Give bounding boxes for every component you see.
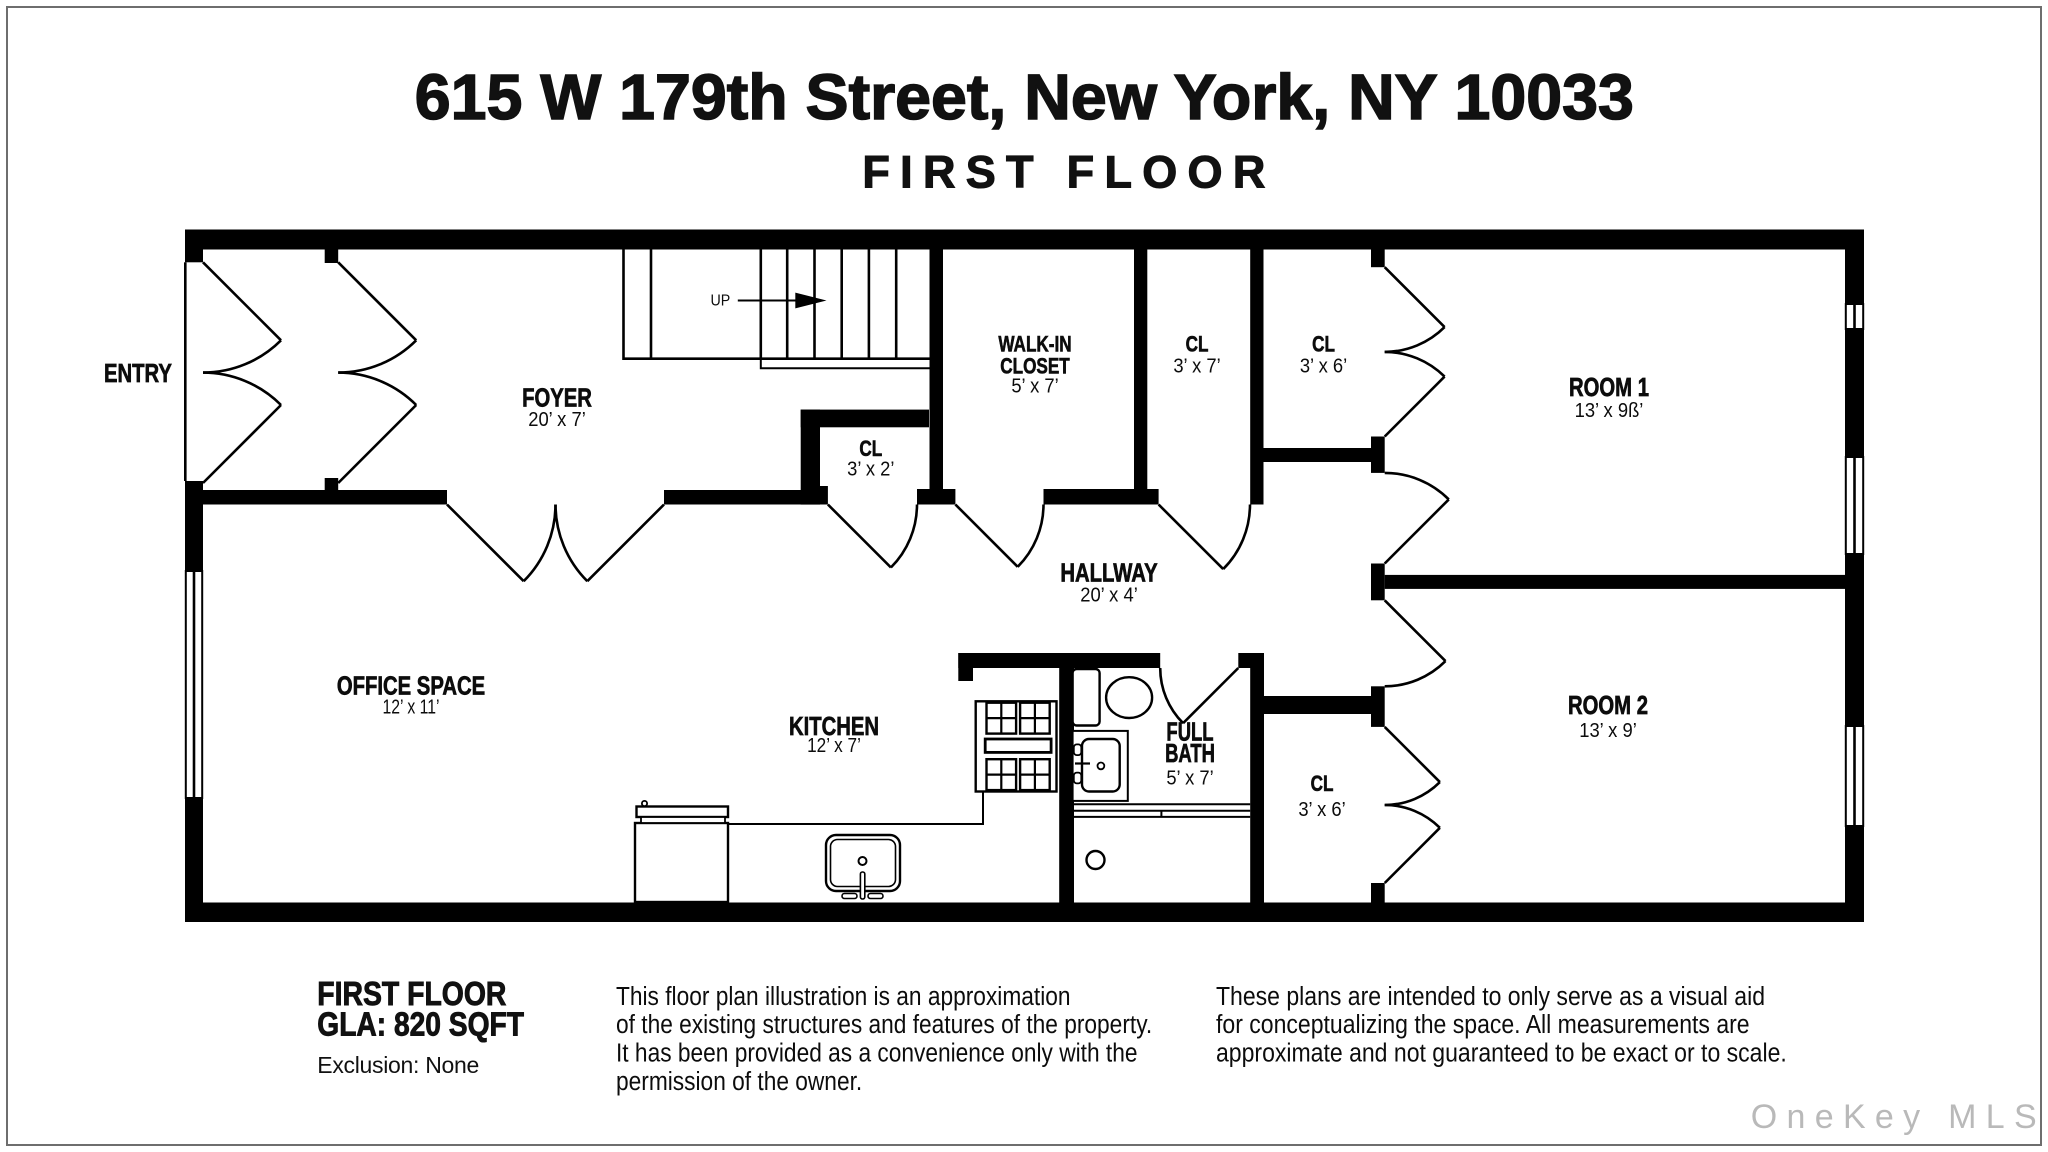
- svg-text:3’ x 6’: 3’ x 6’: [1298, 799, 1345, 821]
- svg-text:5’ x 7’: 5’ x 7’: [1011, 376, 1058, 398]
- svg-text:615 W 179th Street, New York,: 615 W 179th Street, New York, NY 10033: [415, 61, 1634, 133]
- svg-text:for conceptualizing the space.: for conceptualizing the space. All measu…: [1216, 1011, 1750, 1040]
- svg-text:CL: CL: [1186, 333, 1209, 358]
- svg-text:of the existing structures and: of the existing structures and features …: [616, 1011, 1152, 1040]
- svg-text:approximate and not guaranteed: approximate and not guaranteed to be exa…: [1216, 1039, 1787, 1068]
- svg-text:UP: UP: [711, 292, 731, 310]
- svg-text:CL: CL: [1312, 333, 1335, 358]
- svg-text:20’ x 7’: 20’ x 7’: [528, 409, 586, 431]
- svg-text:ROOM 2: ROOM 2: [1568, 691, 1648, 720]
- svg-text:12’ x 11’: 12’ x 11’: [382, 696, 439, 718]
- svg-text:OneKey MLS: OneKey MLS: [1751, 1098, 2046, 1136]
- svg-text:HALLWAY: HALLWAY: [1060, 558, 1158, 587]
- svg-text:FIRST FLOOR: FIRST FLOOR: [862, 147, 1275, 198]
- svg-text:3’ x 2’: 3’ x 2’: [847, 459, 894, 481]
- svg-text:These plans are intended to on: These plans are intended to only serve a…: [1216, 983, 1765, 1012]
- svg-text:12’ x 7’: 12’ x 7’: [807, 734, 861, 757]
- svg-text:ROOM 1: ROOM 1: [1569, 373, 1649, 402]
- svg-text:It has been provided as a conv: It has been provided as a convenience on…: [616, 1039, 1138, 1068]
- svg-text:WALK-IN: WALK-IN: [998, 332, 1071, 357]
- svg-text:GLA: 820 SQFT: GLA: 820 SQFT: [317, 1006, 524, 1044]
- svg-text:CL: CL: [1311, 772, 1334, 797]
- svg-text:Exclusion: None: Exclusion: None: [317, 1052, 479, 1078]
- svg-text:This floor plan illustration i: This floor plan illustration is an appro…: [616, 983, 1071, 1012]
- svg-text:3’ x 7’: 3’ x 7’: [1173, 356, 1220, 378]
- svg-text:BATH: BATH: [1165, 739, 1215, 768]
- svg-text:permission of the owner.: permission of the owner.: [616, 1067, 862, 1096]
- svg-text:5’ x 7’: 5’ x 7’: [1166, 768, 1213, 790]
- svg-text:ENTRY: ENTRY: [104, 358, 172, 387]
- svg-text:20’ x 4’: 20’ x 4’: [1080, 585, 1138, 607]
- svg-text:3’ x 6’: 3’ x 6’: [1300, 356, 1347, 378]
- svg-text:13’ x 9ß’: 13’ x 9ß’: [1575, 400, 1644, 422]
- svg-text:FOYER: FOYER: [522, 383, 592, 412]
- svg-text:13’ x 9’: 13’ x 9’: [1579, 720, 1637, 742]
